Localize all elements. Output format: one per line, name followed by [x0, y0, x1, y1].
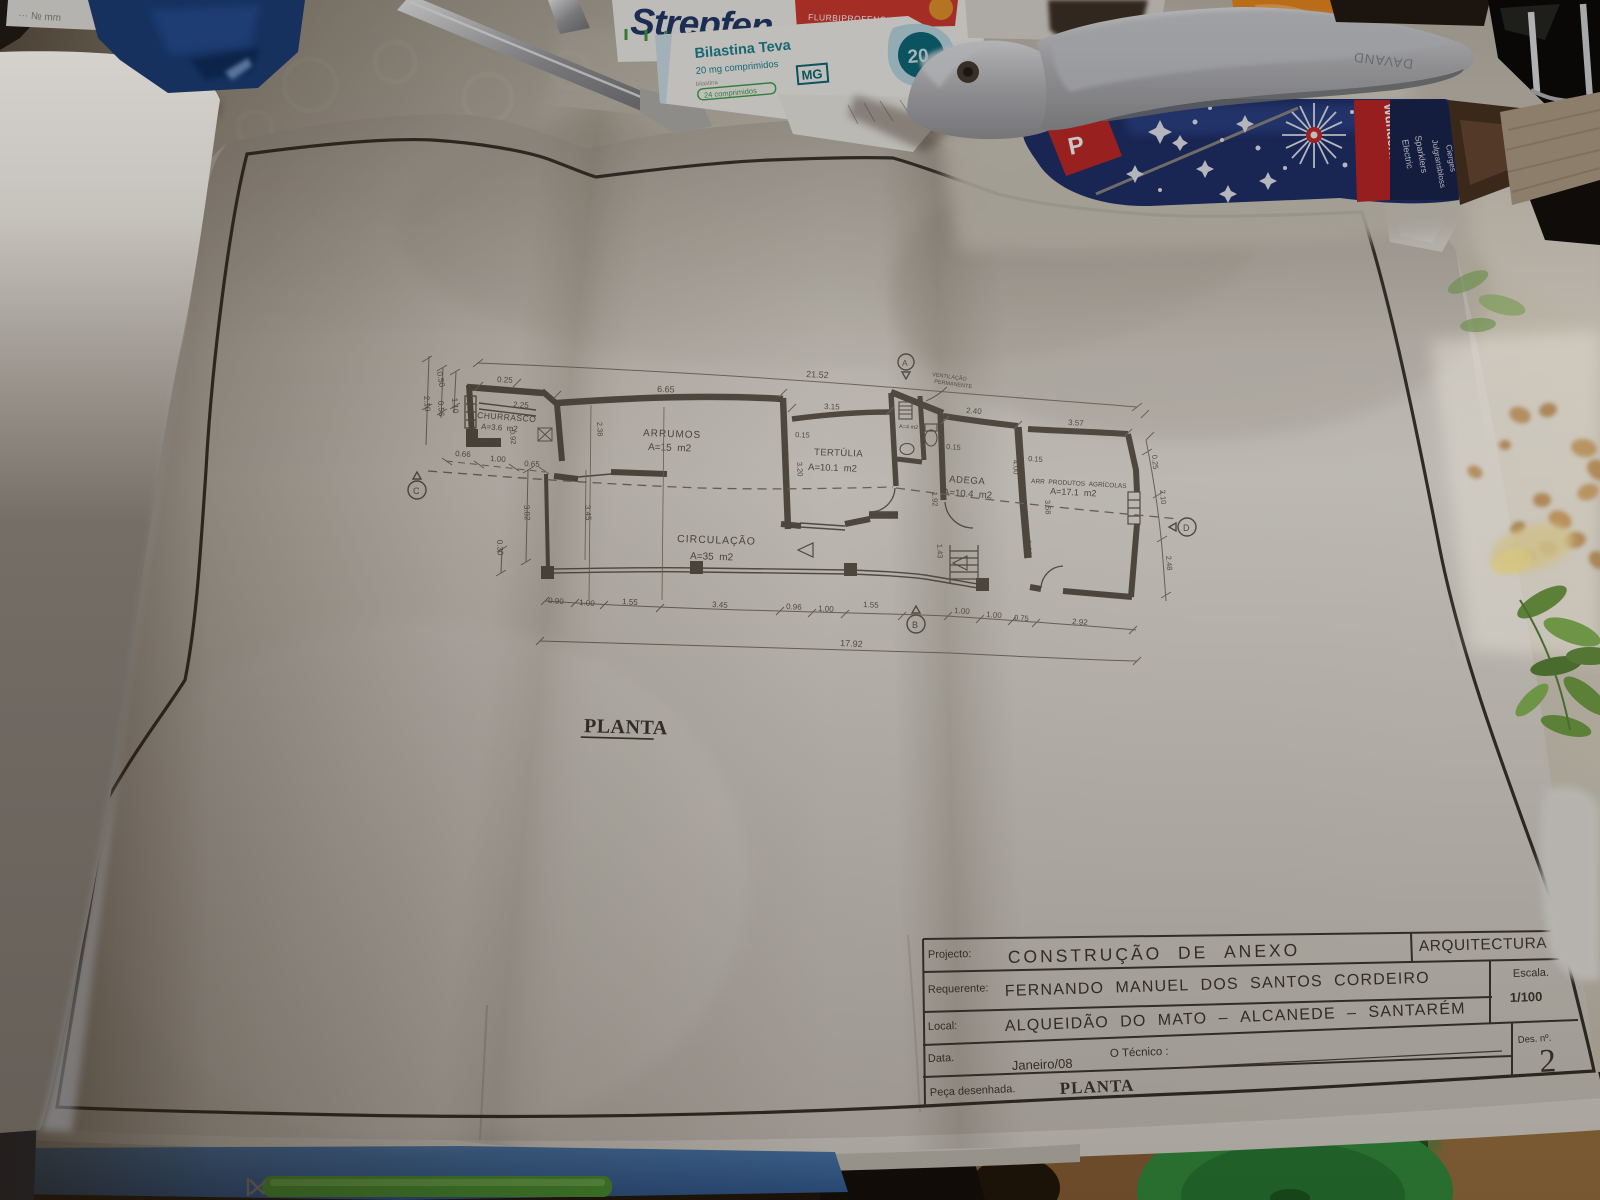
svg-text:MG: MG — [801, 66, 823, 83]
